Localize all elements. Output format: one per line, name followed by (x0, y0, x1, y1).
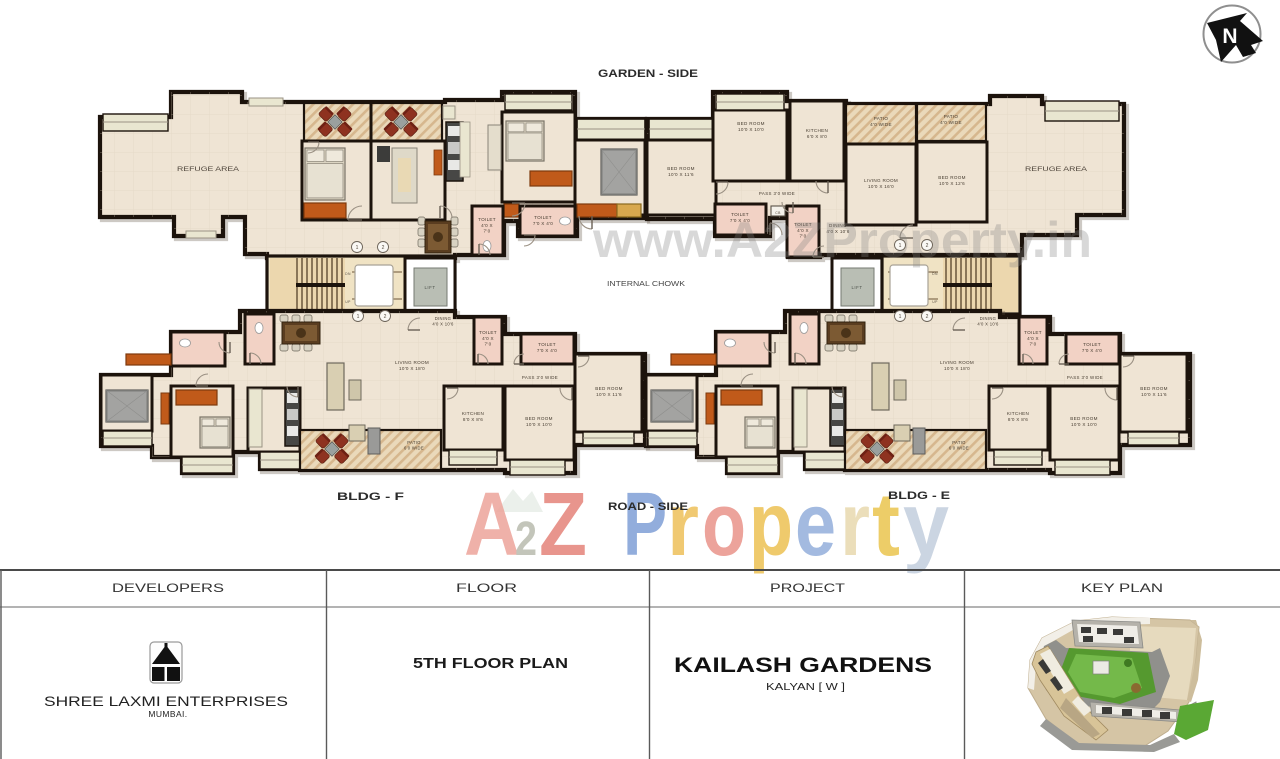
svg-text:e: e (795, 475, 836, 575)
svg-text:Z: Z (539, 475, 587, 575)
svg-text:LIFT: LIFT (851, 285, 862, 290)
svg-text:KEY PLAN: KEY PLAN (1081, 583, 1163, 595)
svg-text:PASS 3'0 WIDE: PASS 3'0 WIDE (759, 191, 795, 196)
svg-text:UP: UP (345, 300, 351, 304)
svg-text:GARDEN - SIDE: GARDEN - SIDE (598, 68, 698, 80)
svg-text:BED ROOM10'0 X 11'6: BED ROOM10'0 X 11'6 (667, 166, 694, 177)
svg-text:LIVING ROOM10'0 X 18'0: LIVING ROOM10'0 X 18'0 (940, 360, 974, 371)
svg-text:KALYAN [ W ]: KALYAN [ W ] (766, 682, 845, 693)
svg-text:o: o (702, 475, 746, 575)
svg-text:p: p (749, 475, 793, 575)
svg-text:TOILET7'0 X 4'0: TOILET7'0 X 4'0 (533, 215, 553, 226)
svg-text:PASS 3'0 WIDE: PASS 3'0 WIDE (1067, 375, 1103, 380)
svg-text:r: r (667, 475, 699, 575)
svg-text:5TH FLOOR PLAN: 5TH FLOOR PLAN (413, 655, 568, 672)
svg-text:PASS 3'0 WIDE: PASS 3'0 WIDE (522, 375, 558, 380)
svg-text:2: 2 (926, 243, 929, 249)
svg-text:TOILET7'0 X 4'0: TOILET7'0 X 4'0 (1082, 342, 1102, 353)
svg-text:TOILET7'0 X 4'0: TOILET7'0 X 4'0 (537, 342, 557, 353)
svg-text:DN: DN (932, 272, 938, 276)
svg-text:1: 1 (899, 243, 902, 249)
svg-text:INTERNAL CHOWK: INTERNAL CHOWK (607, 281, 685, 288)
svg-text:2: 2 (382, 245, 385, 251)
svg-text:www.A2ZProperty.in: www.A2ZProperty.in (592, 212, 1092, 268)
svg-text:DINING4'0 X 10'6: DINING4'0 X 10'6 (977, 316, 999, 326)
svg-text:PROJECT: PROJECT (770, 583, 845, 595)
svg-text:LIVING ROOM10'0 X 18'0: LIVING ROOM10'0 X 18'0 (395, 360, 429, 371)
svg-text:P: P (623, 475, 667, 575)
svg-text:1: 1 (356, 245, 359, 251)
svg-text:FLOOR: FLOOR (456, 583, 517, 595)
svg-text:LIFT: LIFT (424, 285, 435, 290)
svg-text:BLDG - E: BLDG - E (888, 490, 950, 502)
svg-text:UP: UP (932, 300, 938, 304)
svg-text:BED ROOM10'0 X 11'6: BED ROOM10'0 X 11'6 (595, 386, 622, 397)
svg-text:REFUGE AREA: REFUGE AREA (177, 166, 240, 173)
svg-text:BED ROOM10'0 X 12'6: BED ROOM10'0 X 12'6 (938, 175, 965, 186)
svg-text:A: A (464, 475, 520, 575)
svg-text:2: 2 (926, 314, 929, 320)
svg-text:BED ROOM10'0 X 11'6: BED ROOM10'0 X 11'6 (1140, 386, 1167, 397)
svg-text:BED ROOM10'0 X 10'0: BED ROOM10'0 X 10'0 (1070, 416, 1097, 427)
svg-text:ROAD - SIDE: ROAD - SIDE (608, 501, 688, 513)
svg-text:REFUGE AREA: REFUGE AREA (1025, 166, 1088, 173)
svg-text:SHREE LAXMI ENTERPRISES: SHREE LAXMI ENTERPRISES (44, 694, 288, 709)
svg-text:KITCHEN8'0 X 8'6: KITCHEN8'0 X 8'6 (1007, 411, 1029, 422)
svg-text:DN: DN (345, 272, 351, 276)
svg-text:KAILASH GARDENS: KAILASH GARDENS (674, 653, 932, 677)
svg-text:2: 2 (515, 513, 537, 566)
svg-text:1: 1 (357, 314, 360, 320)
svg-text:BLDG - F: BLDG - F (337, 491, 404, 503)
svg-text:MUMBAI.: MUMBAI. (148, 709, 187, 719)
svg-text:DINING4'0 X 10'6: DINING4'0 X 10'6 (432, 316, 454, 326)
svg-text:BED ROOM10'0 X 10'0: BED ROOM10'0 X 10'0 (737, 121, 764, 132)
svg-text:1: 1 (899, 314, 902, 320)
svg-text:DEVELOPERS: DEVELOPERS (112, 583, 224, 595)
svg-text:KITCHEN8'0 X 8'6: KITCHEN8'0 X 8'6 (462, 411, 484, 422)
svg-text:N: N (1222, 25, 1237, 48)
svg-text:LIVING ROOM10'0 X 16'0: LIVING ROOM10'0 X 16'0 (864, 178, 898, 189)
svg-text:r: r (840, 475, 870, 575)
svg-text:2: 2 (384, 314, 387, 320)
svg-text:BED ROOM10'0 X 10'0: BED ROOM10'0 X 10'0 (525, 416, 552, 427)
svg-text:KITCHEN6'0 X 8'0: KITCHEN6'0 X 8'0 (806, 128, 828, 139)
